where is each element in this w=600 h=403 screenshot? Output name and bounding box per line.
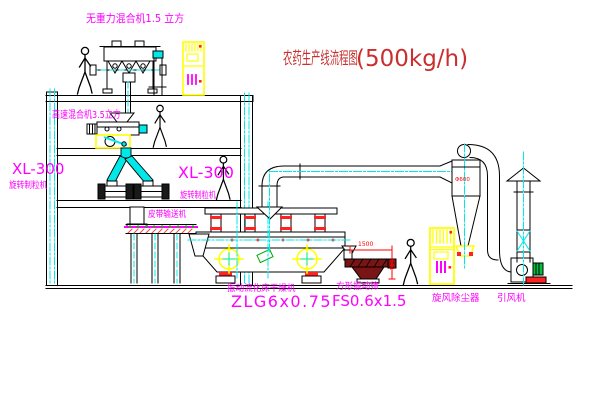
granulator-right-name-label: 旋转制粒机 [180, 192, 216, 201]
screen-name-label: 方形振动筛 [336, 283, 379, 292]
y-chute [107, 148, 153, 184]
belt-conveyor [125, 225, 197, 284]
screen-model-label: FS0.6x1.5 [332, 294, 406, 309]
induced-draft-fan [508, 258, 550, 284]
granulator-left-name-label: 旋转制粒机 [9, 182, 47, 191]
fluid-bed-dryer [189, 208, 345, 283]
diagram-title-capacity: (500kg/h) [356, 48, 468, 71]
control-cabinet-ground [430, 228, 454, 284]
gravity-free-mixer [90, 41, 166, 116]
cyclone-separator [452, 145, 480, 257]
control-cabinet-top [183, 42, 204, 95]
diagram-title: 农药生产线流程图 [283, 51, 358, 68]
fan-label: 引风机 [497, 294, 526, 304]
gravity-mixer-label: 无重力混合机1.5 立方 [86, 13, 184, 24]
belt-conveyor-label: 皮带输送机 [148, 211, 186, 220]
granulator-right-model-label: XL-300 [178, 165, 234, 181]
screen-length-dim: 1500 [358, 242, 373, 248]
granulator-left-model-label: XL-300 [12, 162, 64, 177]
granulator-left [98, 181, 133, 199]
person-figure [403, 239, 417, 284]
flow-diagram: 无重力混合机1.5 立方 农药生产线流程图 (500kg/h) 高速混合机3.5… [0, 0, 600, 403]
screen-outlet-height-dim: 541 [388, 259, 394, 270]
cyclone-diameter-dim: Φ600 [455, 178, 470, 184]
granulator-right [134, 181, 169, 199]
high-speed-mixer-label: 高速混合机3.5立方 [52, 111, 121, 121]
cyclone-label: 旋风除尘器 [432, 294, 480, 304]
dryer-model-label: ZLG6x0.75 [231, 294, 332, 310]
person-figure [153, 105, 166, 147]
